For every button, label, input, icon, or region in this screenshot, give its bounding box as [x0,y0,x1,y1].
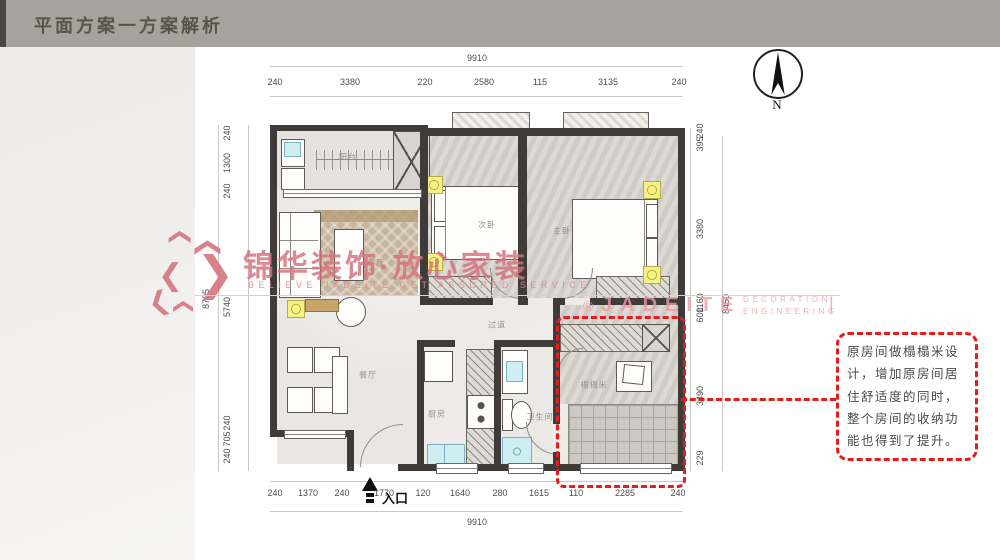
dim-bottom-seg: 2285 [595,488,655,498]
bathroom-basin [506,361,523,382]
master-headboard-line [644,200,645,276]
dim-right-seg: 229 [695,436,705,480]
living-rug-band [314,210,418,222]
round-table [336,297,366,327]
dim-left-overall: 8705 [201,277,211,321]
coffee-table [334,229,364,281]
slide: 平面方案一方案解析 [0,0,1000,560]
master-pillow-1 [646,204,658,238]
wall-master-bottom-a [553,298,565,305]
room-label-kitchen: 厨房 [415,408,458,420]
ceiling-light [643,266,661,284]
north-label: N [765,97,789,113]
dim-line-top-segments [270,96,683,97]
washing-machine-door [284,142,301,157]
dim-right-seg: 3490 [695,374,705,418]
kitchen-sink-divider [444,445,445,463]
wall-kitchen-west [417,340,424,471]
shower [502,437,532,466]
fridge [424,351,453,382]
room-label-balcony: 阳台 [326,151,369,163]
living-rug [314,210,418,296]
window-bathroom [508,463,544,474]
dim-left-seg: 240 [222,169,232,213]
sofa-cushion-line-2 [280,268,318,269]
dim-top-seg: 3135 [578,77,638,87]
sofa-cushion-line-1 [280,240,318,241]
dim-top-overall: 9910 [447,53,507,63]
dim-line-left-segments [248,125,249,471]
title-bar: 平面方案一方案解析 [0,0,1000,47]
callout-box: 原房间做榻榻米设计，增加原房间居住舒适度的同时，整个房间的收纳功能也得到了提升。 [836,332,978,461]
dining-chair-3 [287,387,313,413]
window-kitchen [436,463,478,474]
left-gray-panel [0,47,195,560]
wall-top-bedrooms [420,128,685,136]
sofa [279,212,321,298]
room-label-living: 客厅 [354,257,397,269]
stove [467,395,495,429]
ceiling-light [287,300,305,318]
dim-line-right-segments [690,128,691,471]
north-needle-icon [757,52,799,95]
highlight-dashed-box [556,316,686,488]
dim-left-seg: 5740 [222,285,232,329]
wall-bedrooms-bottom-b [518,298,528,305]
ceiling-light [643,181,661,199]
dim-top-seg: 2580 [454,77,514,87]
wardrobe-bedroom2 [428,276,492,300]
bed2-headboard-line [445,187,446,257]
entrance-arrow-stem2 [366,499,374,503]
room-label-dining: 餐厅 [346,369,389,381]
wall-step [347,430,354,471]
dim-line-bottom-overall [270,511,683,512]
wall-top-balcony [270,125,428,131]
wall-kitchen-bath-divider [494,340,501,471]
console-table [305,299,339,312]
dim-top-seg: 3380 [320,77,380,87]
wall-bedrooms-bottom-a [420,298,493,305]
dim-top-seg: 240 [649,77,709,87]
page-title: 平面方案一方案解析 [34,12,223,38]
dining-table [332,356,348,414]
callout-text: 原房间做榻榻米设计，增加原房间居住舒适度的同时，整个房间的收纳功能也得到了提升。 [847,341,967,452]
dim-bottom-overall: 9910 [447,517,507,527]
north-compass [753,49,803,99]
dim-right-overall: 8450 [721,282,731,326]
dim-left-seg: 240 [222,434,232,478]
window-balcony-living [283,189,422,198]
dim-top-seg: 240 [245,77,305,87]
room-label-corridor: 过道 [475,319,518,331]
dim-bottom-seg: 240 [648,488,708,498]
window-dining [284,430,346,439]
dim-top-seg: 220 [395,77,455,87]
dim-top-seg: 115 [510,77,570,87]
dim-right-seg: 600 [695,293,705,337]
title-accent-bar [0,0,6,47]
balcony-cabinet [281,168,305,190]
sofa-back-line [290,213,291,295]
wall-bedroom2-west [420,131,428,305]
wall-bathroom-top [494,340,560,347]
callout-leader-line [681,398,836,401]
wall-bedroom-divider [518,136,527,305]
dim-right-seg: 395 [695,122,705,166]
room-label-bedroom2: 次卧 [465,219,508,231]
dim-line-left-overall [218,125,219,471]
dim-right-seg: 3380 [695,207,705,251]
dim-line-top-overall [270,66,683,67]
room-label-master: 主卧 [540,225,583,237]
dining-chair-1 [287,347,313,373]
wall-master-bottom-b [590,298,685,305]
wall-left-outer [270,125,277,437]
